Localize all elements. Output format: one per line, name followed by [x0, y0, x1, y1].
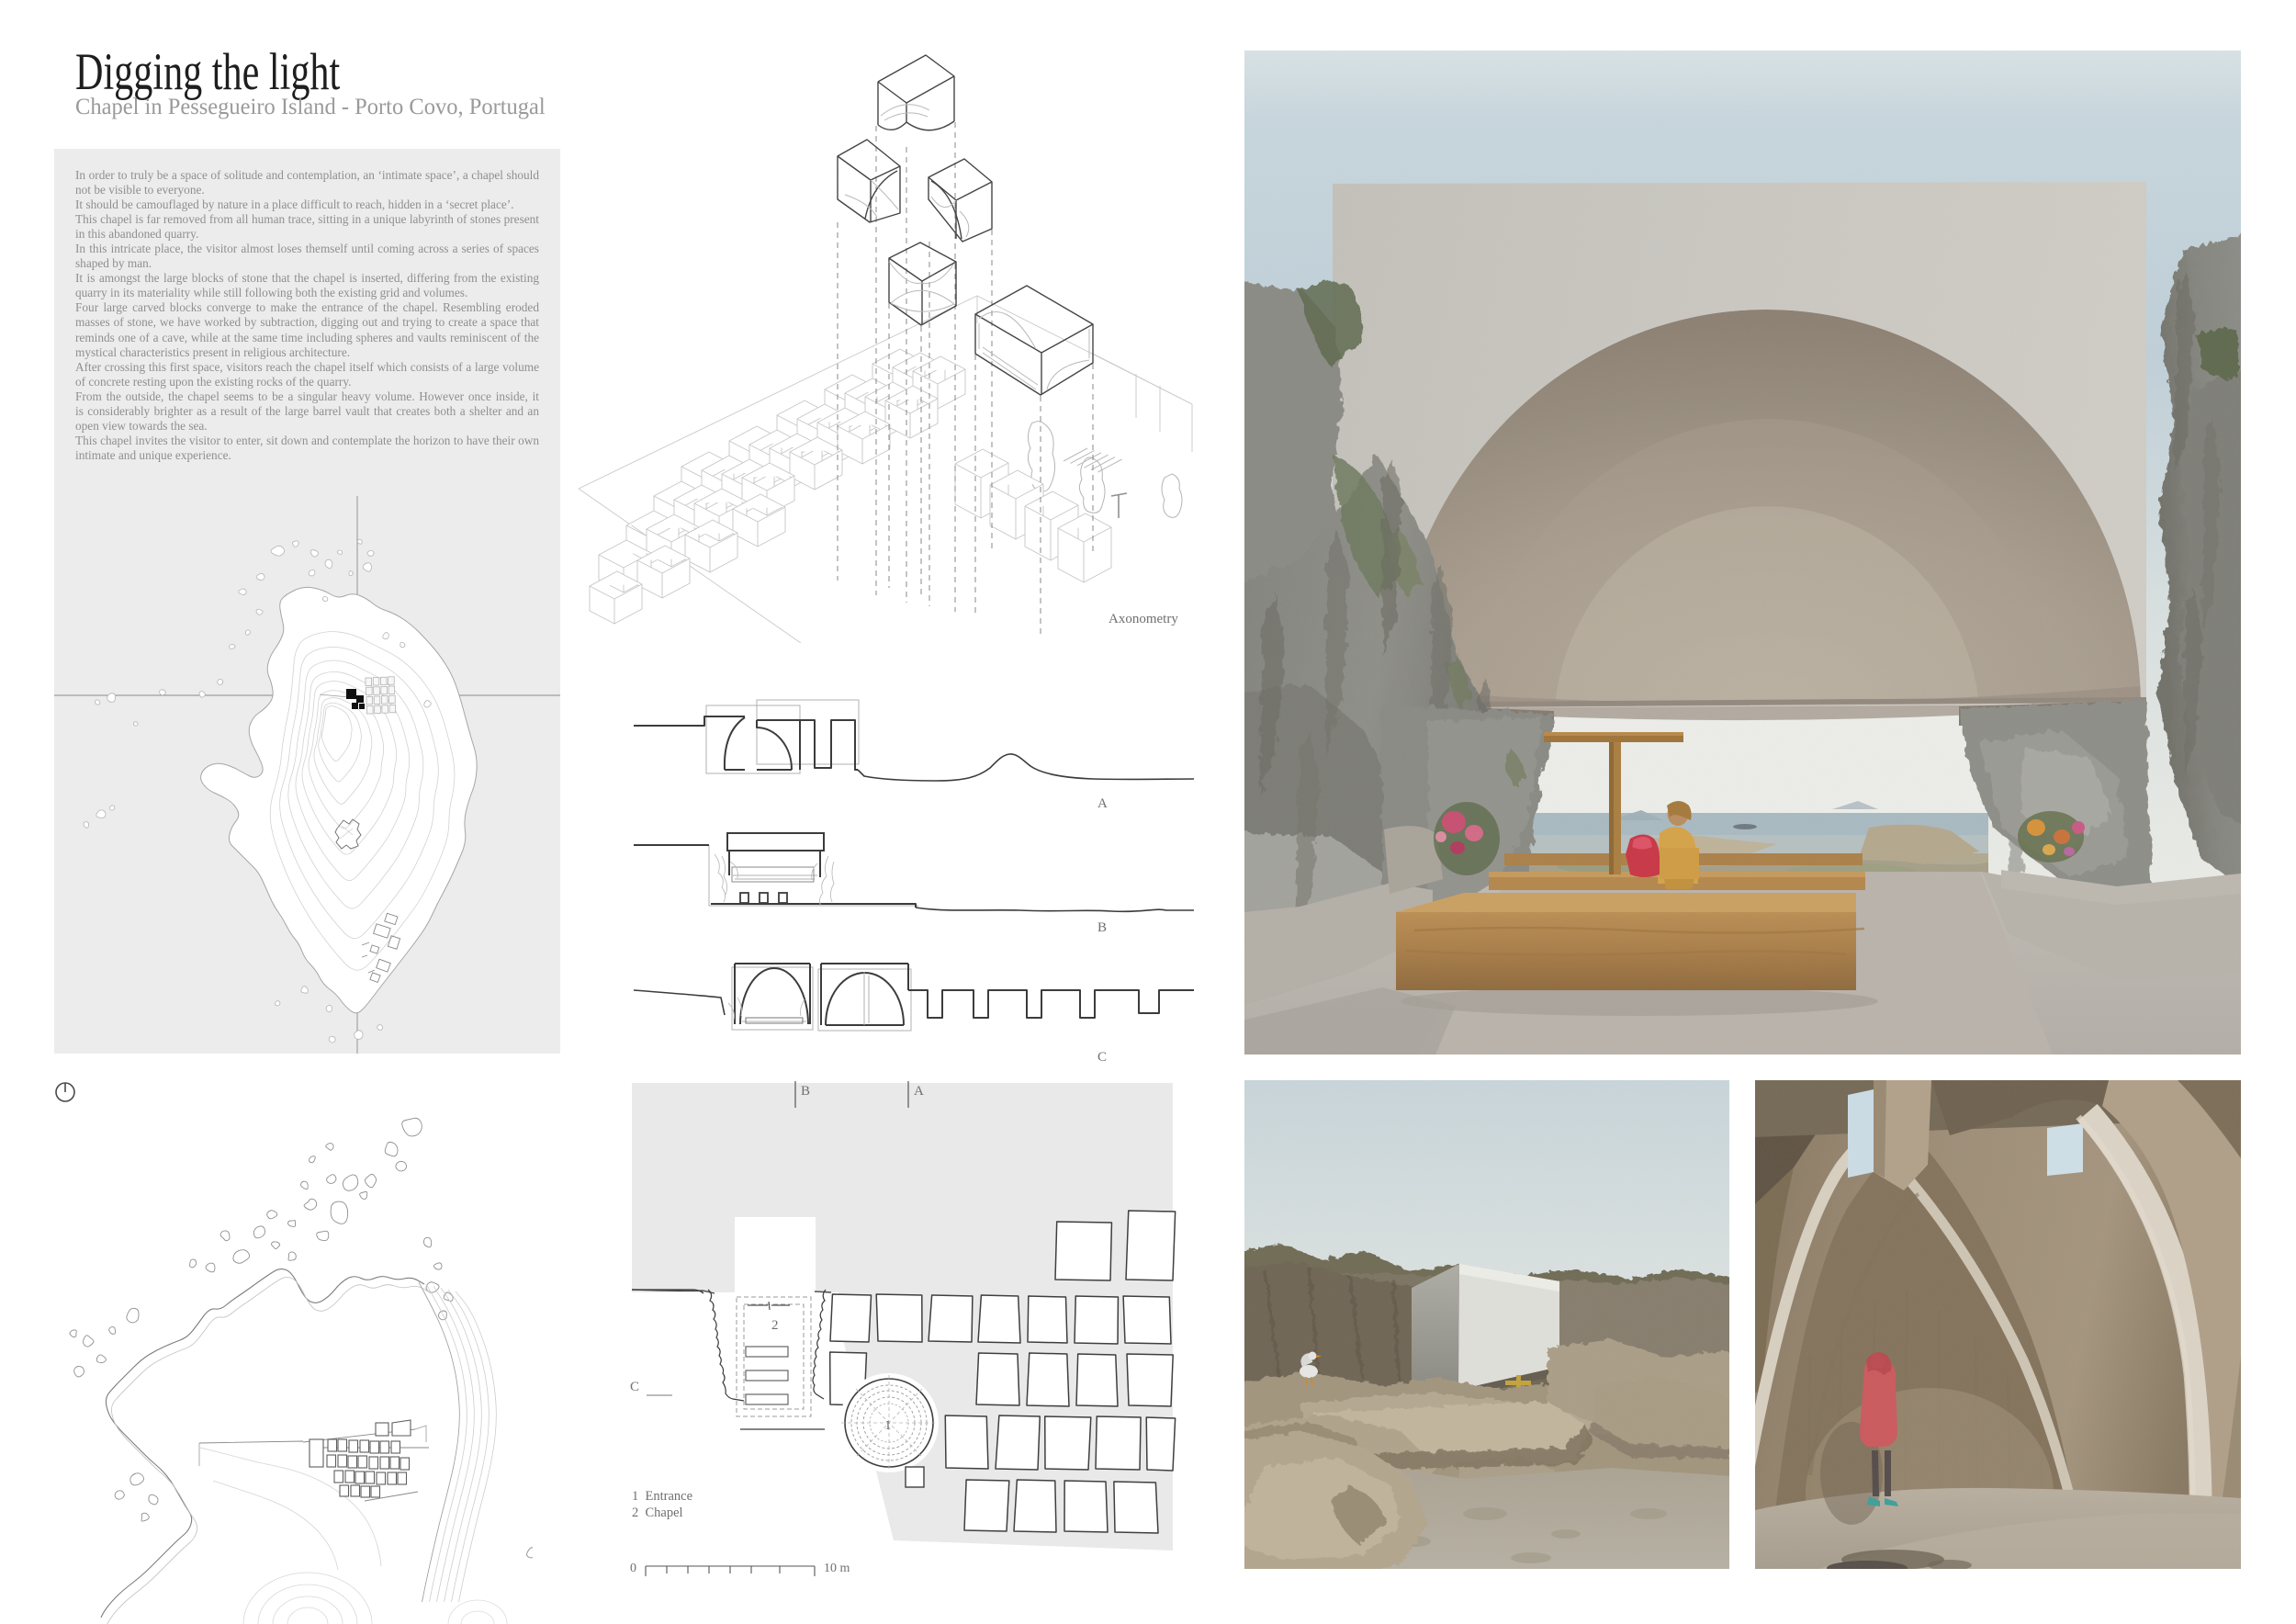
svg-text:1 Entrance: 1 Entrance: [632, 1489, 692, 1504]
svg-text:A: A: [1097, 796, 1108, 811]
svg-text:A: A: [914, 1084, 924, 1099]
svg-text:B: B: [801, 1084, 810, 1099]
svg-text:10 m: 10 m: [824, 1562, 850, 1575]
svg-text:2: 2: [771, 1318, 779, 1333]
svg-text:C: C: [1097, 1050, 1107, 1065]
svg-text:1: 1: [884, 1418, 892, 1433]
svg-text:0: 0: [630, 1562, 636, 1575]
svg-text:B: B: [1097, 920, 1107, 935]
svg-text:Axonometry: Axonometry: [1109, 612, 1178, 626]
svg-text:2 Chapel: 2 Chapel: [632, 1506, 683, 1520]
svg-text:C: C: [630, 1380, 639, 1394]
